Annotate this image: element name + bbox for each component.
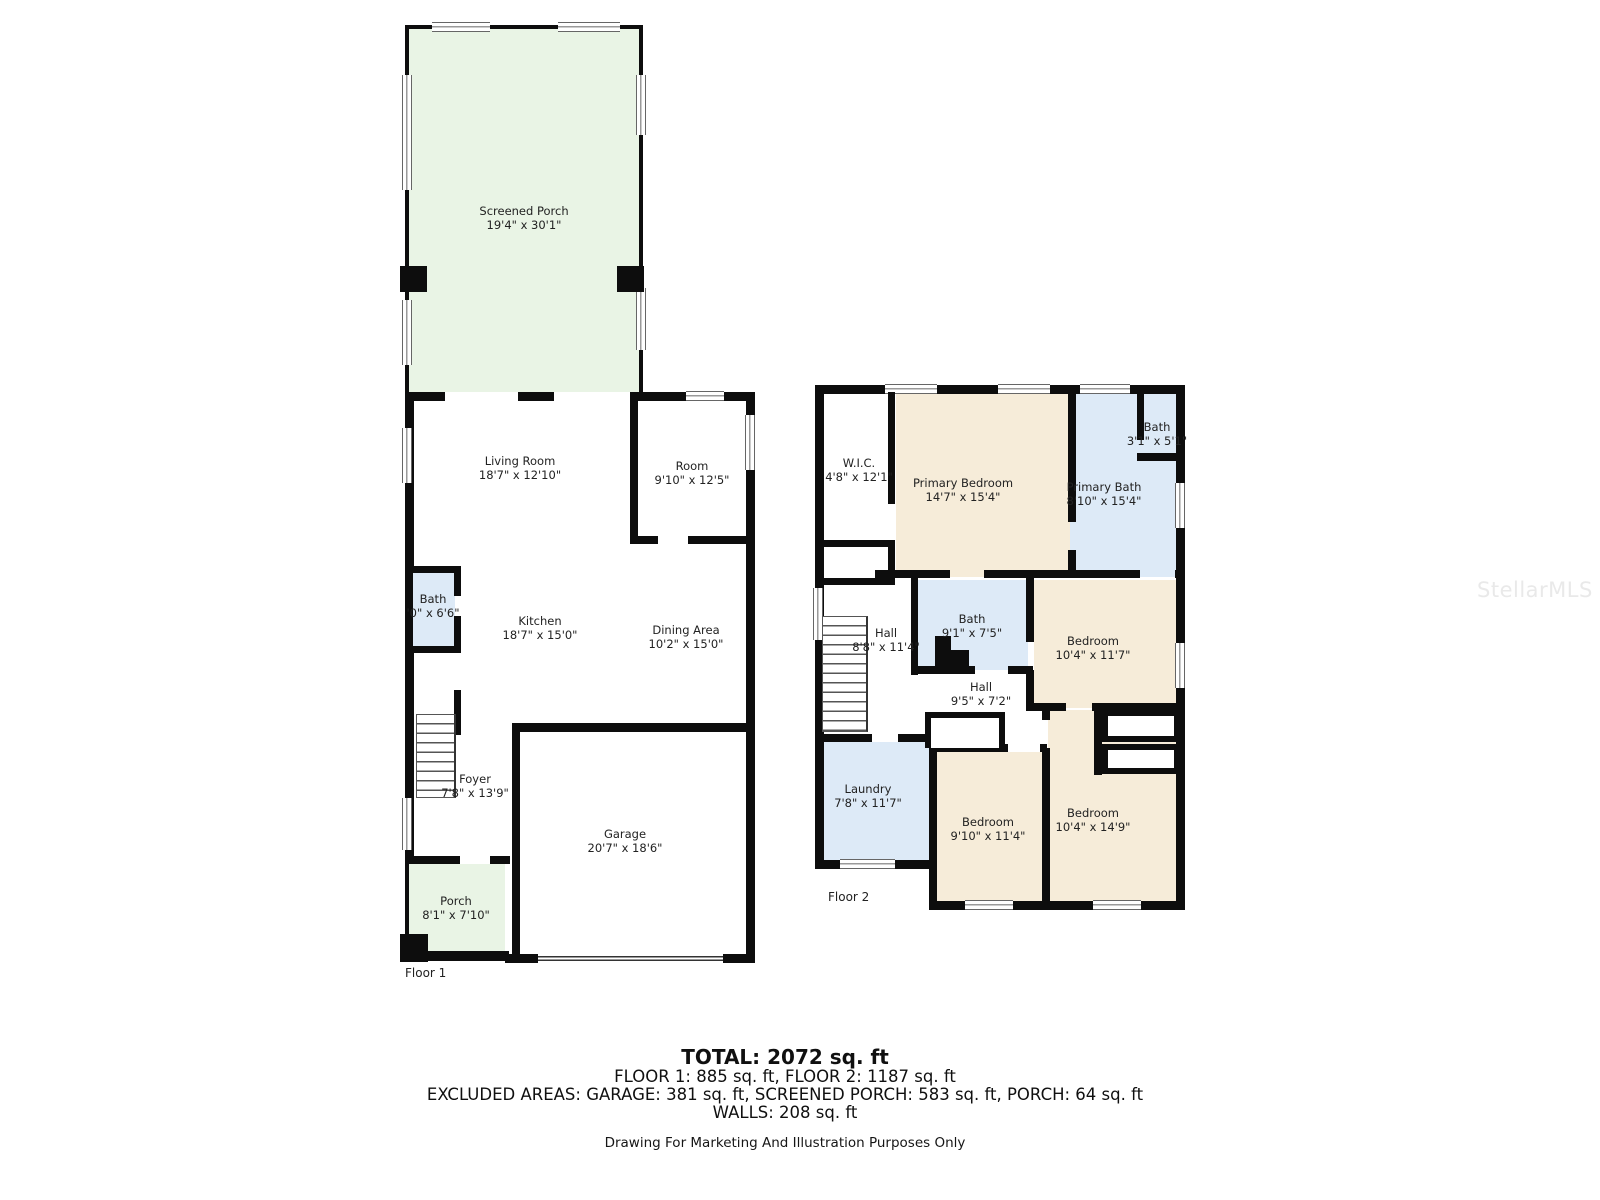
span: 8'10" x 15'4" [1067, 494, 1142, 508]
closet [925, 712, 1005, 748]
screen-window [636, 288, 646, 350]
span: 18'7" x 15'0" [503, 628, 578, 642]
wall [1175, 570, 1180, 578]
label-hall-lower: Hall9'5" x 7'2" [951, 680, 1011, 708]
wall [1026, 570, 1034, 642]
window [402, 798, 412, 850]
wall [1094, 703, 1102, 775]
span: Porch [440, 894, 472, 908]
wall [454, 616, 461, 653]
window [686, 391, 724, 401]
wall [406, 566, 461, 573]
span: Foyer [459, 772, 491, 786]
wall [1008, 666, 1033, 674]
wall [630, 392, 638, 544]
wall [815, 734, 872, 742]
span: Bedroom [1067, 634, 1119, 648]
label-bath-small: Bath3'1" x 5'1" [1127, 420, 1187, 448]
wall [911, 570, 918, 675]
summary-floors: FLOOR 1: 885 sq. ft, FLOOR 2: 1187 sq. f… [0, 1068, 1570, 1086]
span: Kitchen [518, 614, 561, 628]
wall [512, 723, 755, 732]
wall [723, 954, 755, 963]
summary-walls: WALLS: 208 sq. ft [0, 1104, 1570, 1122]
span: 20'7" x 18'6" [588, 841, 663, 855]
span: 7'8" x 13'9" [441, 786, 509, 800]
span: Primary Bath [1067, 480, 1142, 494]
window [998, 384, 1050, 394]
label-room: Room9'10" x 12'5" [655, 459, 730, 487]
wall [746, 723, 755, 963]
wall [815, 578, 895, 585]
area-summary: TOTAL: 2072 sq. ft FLOOR 1: 885 sq. ft, … [0, 1046, 1570, 1151]
label-kitchen: Kitchen18'7" x 15'0" [503, 614, 578, 642]
floor-plan-canvas: Screened Porch19'4" x 30'1" Living Room1… [0, 0, 1600, 1200]
span: 18'7" x 12'10" [479, 468, 561, 482]
post [400, 934, 428, 962]
label-hall-upper: Hall8'8" x 11'4" [852, 626, 920, 654]
label-bedroom-se: Bedroom10'4" x 14'9" [1056, 806, 1131, 834]
label-bedroom-ne: Bedroom10'4" x 11'7" [1056, 634, 1131, 662]
screen-window [432, 22, 490, 32]
floor1-tag: Floor 1 [405, 966, 446, 980]
span: 3'1" x 5'1" [1127, 434, 1187, 448]
wall [630, 536, 658, 544]
span: Bath [420, 592, 447, 606]
span: 9'5" x 7'2" [951, 694, 1011, 708]
wall [888, 392, 895, 504]
window [402, 428, 412, 483]
span: 4'8" x 12'1" [825, 470, 893, 484]
span: 19'4" x 30'1" [487, 218, 562, 232]
span: W.I.C. [843, 456, 875, 470]
window [1080, 384, 1130, 394]
wall [815, 540, 895, 547]
span: Living Room [485, 454, 556, 468]
label-screened-porch: Screened Porch19'4" x 30'1" [479, 204, 568, 232]
span: 9'10" x 12'5" [655, 473, 730, 487]
wall [1042, 710, 1050, 720]
span: Hall [875, 626, 897, 640]
wall [490, 856, 510, 864]
label-living-room: Living Room18'7" x 12'10" [479, 454, 561, 482]
span: Hall [970, 680, 992, 694]
window [965, 900, 1013, 910]
span: 10'2" x 15'0" [649, 637, 724, 651]
stellar-mls-watermark: StellarMLS [1477, 578, 1593, 602]
label-dining-area: Dining Area10'2" x 15'0" [649, 623, 724, 651]
span: Primary Bedroom [913, 476, 1013, 490]
wall [630, 392, 688, 401]
span: Laundry [845, 782, 892, 796]
wall [505, 954, 538, 963]
window [1175, 483, 1185, 528]
label-porch: Porch8'1" x 7'10" [422, 894, 490, 922]
span: Bath [1144, 420, 1171, 434]
span: 8'8" x 11'4" [852, 640, 920, 654]
post [400, 266, 427, 292]
span: 10'4" x 14'9" [1056, 820, 1131, 834]
label-foyer: Foyer7'8" x 13'9" [441, 772, 509, 800]
screen-window [558, 22, 620, 32]
screen-window [636, 75, 646, 135]
span: 9'10" x 11'4" [951, 829, 1026, 843]
wall [1042, 748, 1050, 904]
screen-window [402, 75, 412, 190]
window [840, 859, 895, 869]
span: Dining Area [652, 623, 719, 637]
floor2-tag: Floor 2 [828, 890, 869, 904]
label-wic: W.I.C.4'8" x 12'1" [825, 456, 893, 484]
screen-window [402, 300, 412, 365]
wall [984, 570, 1140, 578]
span: 9'1" x 7'5" [942, 626, 1002, 640]
label-primary-bedroom: Primary Bedroom14'7" x 15'4" [913, 476, 1013, 504]
label-primary-bath: Primary Bath8'10" x 15'4" [1067, 480, 1142, 508]
span: Screened Porch [479, 204, 568, 218]
window [1093, 900, 1141, 910]
label-laundry: Laundry7'8" x 11'7" [834, 782, 902, 810]
disclaimer: Drawing For Marketing And Illustration P… [0, 1135, 1570, 1151]
post [617, 266, 644, 292]
span: Garage [604, 827, 646, 841]
span: 8'1" x 7'10" [422, 908, 490, 922]
summary-excluded: EXCLUDED AREAS: GARAGE: 381 sq. ft, SCRE… [0, 1086, 1570, 1104]
closet [1102, 744, 1180, 774]
wall [929, 744, 937, 904]
label-bath1: Bath'0" x 6'6" [407, 592, 460, 620]
wall [1040, 744, 1047, 752]
window [1175, 643, 1185, 688]
span: 7'8" x 11'7" [834, 796, 902, 810]
span: 14'7" x 15'4" [926, 490, 1001, 504]
span: '0" x 6'6" [407, 606, 460, 620]
span: Bedroom [1067, 806, 1119, 820]
wall [512, 723, 520, 963]
label-bedroom-s: Bedroom9'10" x 11'4" [951, 815, 1026, 843]
span: Bath [959, 612, 986, 626]
fixture-block [935, 636, 951, 670]
span: 10'4" x 11'7" [1056, 648, 1131, 662]
label-garage: Garage20'7" x 18'6" [588, 827, 663, 855]
span: Room [676, 459, 709, 473]
closet [1102, 710, 1180, 742]
span: Bedroom [962, 815, 1014, 829]
window [745, 415, 755, 470]
wall [688, 536, 755, 544]
wall [518, 392, 554, 401]
wall [1137, 453, 1185, 461]
label-bath-mid: Bath9'1" x 7'5" [942, 612, 1002, 640]
wall [898, 734, 930, 742]
wall [405, 856, 460, 864]
wall [406, 646, 461, 653]
summary-total: TOTAL: 2072 sq. ft [0, 1046, 1570, 1068]
garage-door [538, 956, 723, 961]
